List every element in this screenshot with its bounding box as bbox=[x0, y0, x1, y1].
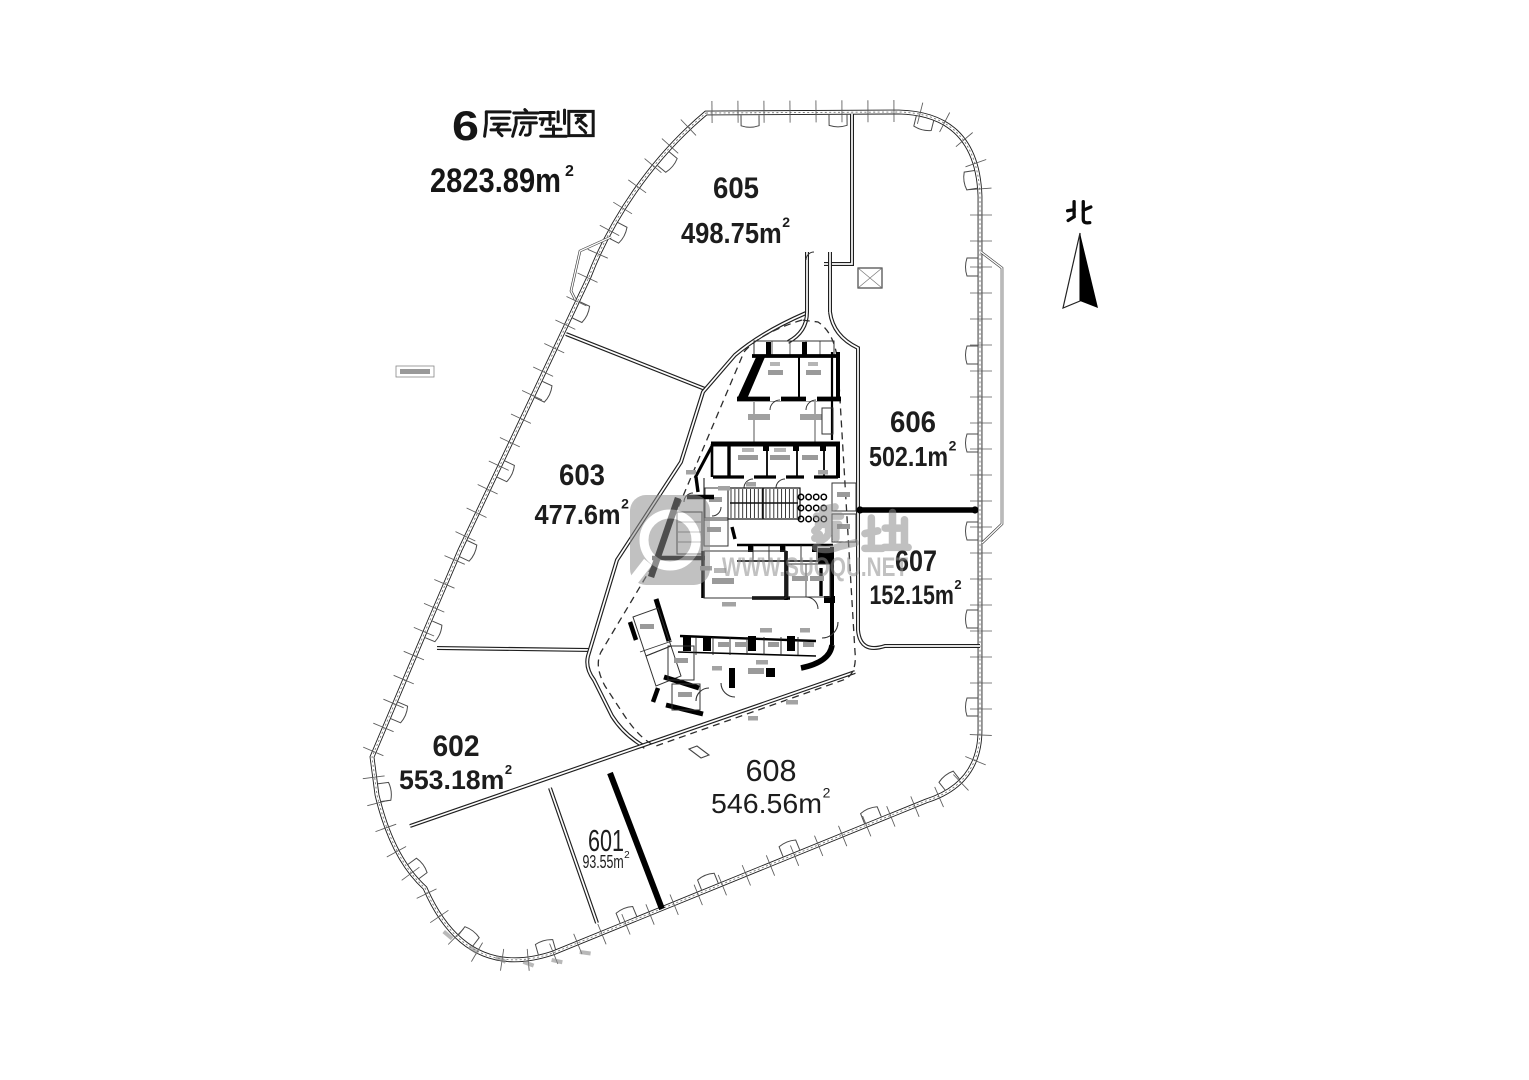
svg-text:2: 2 bbox=[505, 762, 512, 777]
svg-text:553.18m: 553.18m bbox=[399, 765, 504, 795]
svg-text:152.15m: 152.15m bbox=[870, 580, 954, 610]
svg-text:6: 6 bbox=[452, 102, 479, 149]
svg-text:2: 2 bbox=[621, 496, 629, 512]
svg-text:608: 608 bbox=[746, 753, 797, 788]
svg-text:93.55m: 93.55m bbox=[583, 852, 624, 872]
svg-text:2: 2 bbox=[624, 850, 630, 861]
svg-text:605: 605 bbox=[713, 172, 759, 205]
svg-text:2: 2 bbox=[954, 577, 961, 592]
svg-text:546.56m: 546.56m bbox=[711, 788, 822, 819]
svg-text:2: 2 bbox=[823, 785, 831, 801]
svg-text:2823.89m: 2823.89m bbox=[430, 162, 561, 200]
svg-text:502.1m: 502.1m bbox=[869, 441, 948, 472]
svg-text:WWW.SUOQU.NET: WWW.SUOQU.NET bbox=[722, 552, 908, 582]
svg-text:2: 2 bbox=[565, 163, 574, 180]
svg-text:606: 606 bbox=[890, 406, 936, 439]
svg-text:602: 602 bbox=[433, 730, 480, 763]
svg-text:603: 603 bbox=[559, 459, 605, 492]
svg-text:2: 2 bbox=[949, 438, 957, 454]
svg-text:2: 2 bbox=[782, 214, 790, 230]
svg-text:498.75m: 498.75m bbox=[681, 218, 782, 250]
svg-text:477.6m: 477.6m bbox=[535, 499, 621, 530]
